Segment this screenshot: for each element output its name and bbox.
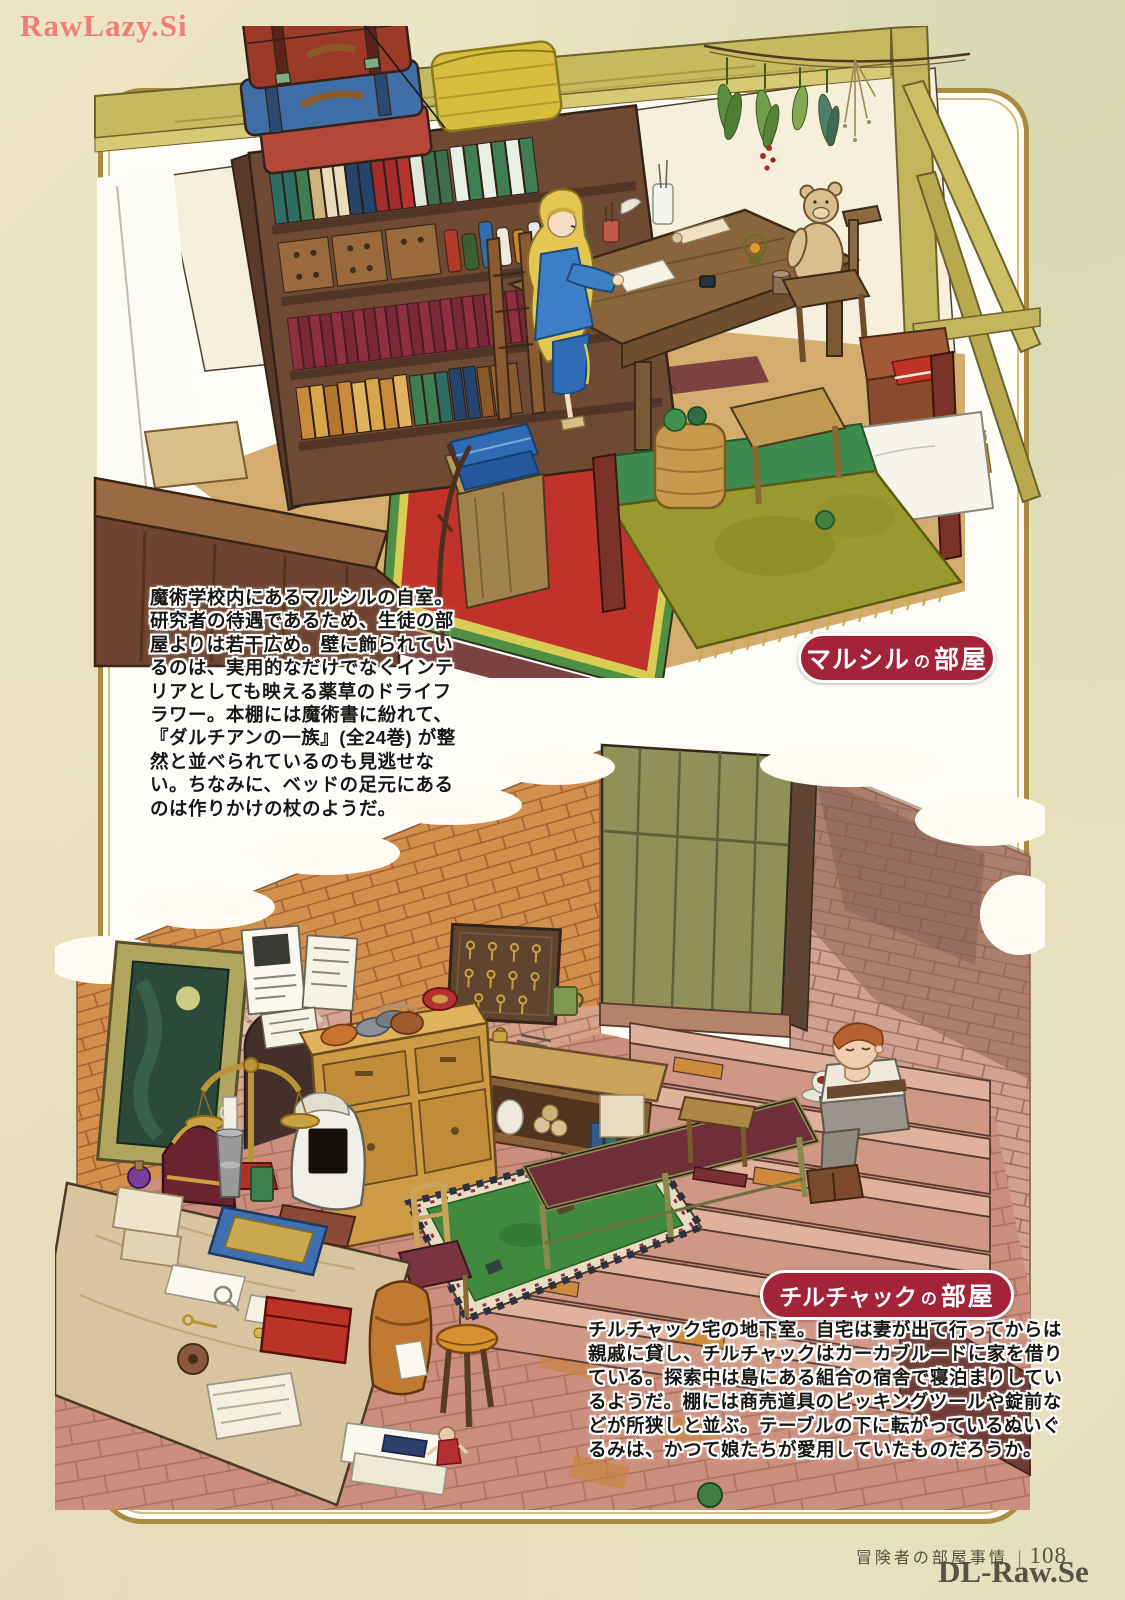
illustration-marcille-room <box>55 26 1045 678</box>
watermark-rawlazy: RawLazy.Si <box>20 8 188 44</box>
caption-chilchuck: チルチャック宅の地下室。自宅は妻が出て行ってからは 親戚に貸し、チルチャックはカ… <box>588 1318 1063 1461</box>
badge-particle: の <box>921 1285 937 1309</box>
wooden-door <box>602 745 817 1031</box>
caption-marcille: 魔術学校内にあるマルシルの自室。 研究者の待遇であるため、生徒の部 屋よりは若干… <box>150 586 480 820</box>
badge-room-word: 部屋 <box>941 1277 995 1313</box>
watermark-leader-line <box>355 18 455 138</box>
badge-room-word: 部屋 <box>934 640 988 676</box>
red-box <box>261 1297 351 1363</box>
leather-bag <box>370 1281 431 1394</box>
room-badge-marcille: マルシルの部屋 <box>798 633 996 683</box>
watermark-dlraw: DL-Raw.Se <box>938 1554 1089 1590</box>
green-ball <box>698 1483 722 1507</box>
room-badge-chilchuck: チルチャックの部屋 <box>760 1270 1014 1320</box>
badge-room-owner: チルチャック <box>779 1278 917 1312</box>
badge-particle: の <box>914 648 930 672</box>
badge-room-owner: マルシル <box>806 640 910 676</box>
scanned-book-page: 魔術学校内にあるマルシルの自室。 研究者の待遇であるため、生徒の部 屋よりは若干… <box>0 0 1125 1600</box>
